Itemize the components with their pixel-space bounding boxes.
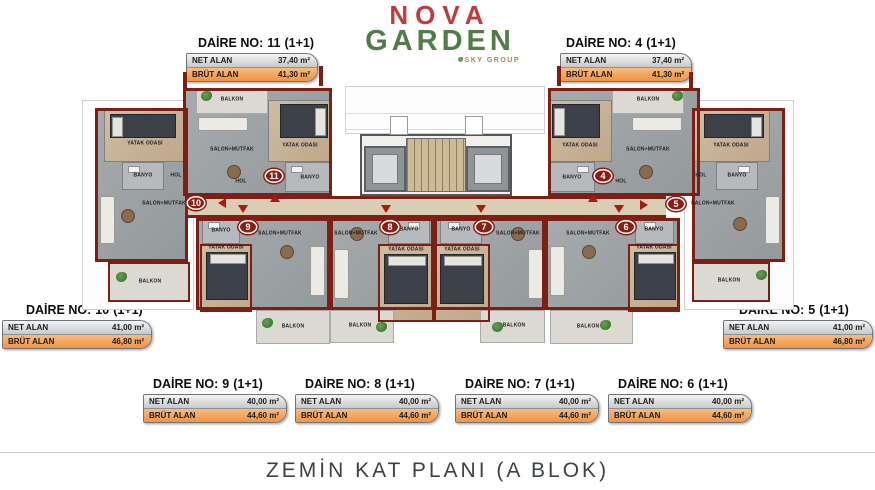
room-label: SALON+MUTFAK (142, 201, 186, 207)
room-label: YATAK ODASI (388, 247, 423, 253)
bath-fixture-icon (291, 166, 303, 173)
wall-stub (319, 66, 323, 86)
apartment-info-card-8: DAİRE NO:8(1+1) NET ALAN40,00 m² BRÜT AL… (295, 377, 439, 423)
net-area-row: NET ALAN37,40 m² (187, 54, 317, 68)
dining-table-icon (733, 217, 747, 231)
room-label: BANYO (211, 228, 230, 234)
dining-table-icon (639, 165, 653, 179)
entry-arrow-icon (614, 205, 624, 213)
apartment-title: DAİRE NO:9(1+1) (143, 377, 287, 391)
unit-marker-6: 6 (617, 220, 636, 234)
brut-area-row: BRÜT ALAN44,60 m² (456, 409, 598, 422)
apartment-title: DAİRE NO:4(1+1) (560, 36, 692, 50)
room-label: SALON+MUTFAK (626, 147, 670, 153)
room-label: SALON+MUTFAK (566, 231, 610, 237)
room-label: YATAK ODASI (636, 245, 671, 251)
sofa-icon (632, 117, 682, 131)
room-label: YATAK ODASI (208, 245, 243, 251)
unit-marker-11: 11 (265, 169, 284, 183)
terrace-line (346, 113, 544, 114)
room-label: YATAK ODASI (713, 143, 748, 149)
apartment-info-card-9: DAİRE NO:9(1+1) NET ALAN40,00 m² BRÜT AL… (143, 377, 287, 423)
unit-marker-8: 8 (381, 220, 400, 234)
unit-marker-4: 4 (594, 169, 613, 183)
brut-area-row: BRÜT ALAN44,60 m² (609, 409, 751, 422)
brand-group: SKY GROUP (352, 57, 528, 64)
entry-arrow-icon (476, 205, 486, 213)
header-logo: NOVA GARDEN SKY GROUP (352, 2, 528, 64)
room-label: HOL (615, 179, 626, 185)
room-label: BALKON (349, 323, 372, 329)
net-area-row: NET ALAN40,00 m² (609, 395, 751, 409)
room-label: YATAK ODASI (127, 141, 162, 147)
room-label: BALKON (503, 323, 526, 329)
footer-title: ZEMİN KAT PLANI (A BLOK) (0, 459, 875, 483)
room-label: HOL (695, 173, 706, 179)
terrace-line (346, 129, 544, 130)
apartment-title: DAİRE NO:8(1+1) (295, 377, 439, 391)
shaft-left (390, 116, 408, 135)
footer-divider (0, 452, 875, 453)
sofa-icon (198, 117, 248, 131)
net-area-row: NET ALAN37,40 m² (561, 54, 691, 68)
room-label: SALON+MUTFAK (210, 147, 254, 153)
apartment-title: DAİRE NO:6(1+1) (608, 377, 752, 391)
unit-marker-7: 7 (475, 220, 494, 234)
bed-icon (280, 104, 328, 138)
wall-stub (557, 66, 561, 86)
room-label: BALKON (637, 97, 660, 103)
terrace-outline (345, 86, 545, 134)
elevator-right (466, 146, 510, 192)
room-label: BALKON (718, 278, 741, 284)
dining-table-icon (280, 245, 294, 259)
sofa-icon (334, 249, 349, 299)
room-label: SALON+MUTFAK (496, 231, 540, 237)
room-label: BANYO (727, 173, 746, 179)
room-label: HOL (235, 179, 246, 185)
room-label: HOL (170, 173, 181, 179)
floor-plan: YATAK ODASI BANYO HOL SALON+MUTFAK BALKO… (88, 84, 788, 354)
dining-table-icon (582, 245, 596, 259)
shaft-right (465, 116, 483, 135)
entry-arrow-icon (238, 205, 248, 213)
entry-arrow-icon (640, 200, 648, 210)
unit-marker-10: 10 (187, 196, 206, 210)
bed-icon (110, 114, 176, 138)
bed-icon (206, 252, 248, 300)
brut-area-row: BRÜT ALAN44,60 m² (144, 409, 286, 422)
sofa-icon (310, 246, 325, 296)
page: { "logo": { "brand_top": "NOVA", "brand_… (0, 0, 875, 490)
room-label: BALKON (577, 324, 600, 330)
room-label: SALON+MUTFAK (258, 231, 302, 237)
dining-table-icon (121, 209, 135, 223)
net-area-row: NET ALAN40,00 m² (144, 395, 286, 409)
brut-area-row: BRÜT ALAN41,30 m² (561, 68, 691, 81)
room-label: BANYO (562, 175, 581, 181)
apartment-title: DAİRE NO:7(1+1) (455, 377, 599, 391)
room-label: YATAK ODASI (562, 143, 597, 149)
room-label: BANYO (644, 227, 663, 233)
entry-arrow-icon (381, 205, 391, 213)
brut-area-row: BRÜT ALAN41,30 m² (187, 68, 317, 81)
sofa-icon (550, 246, 565, 296)
room-label: YATAK ODASI (282, 143, 317, 149)
room-label: BANYO (300, 175, 319, 181)
bath-fixture-icon (577, 166, 589, 173)
apartment-title: DAİRE NO:11(1+1) (186, 36, 318, 50)
sofa-icon (100, 196, 115, 244)
wall-stub (183, 72, 187, 88)
apartment-info-card-7: DAİRE NO:7(1+1) NET ALAN40,00 m² BRÜT AL… (455, 377, 599, 423)
unit-marker-9: 9 (239, 220, 258, 234)
room-label: YATAK ODASI (444, 247, 479, 253)
unit-marker-5: 5 (667, 197, 686, 211)
room-label: BANYO (399, 227, 418, 233)
apartment-info-card-6: DAİRE NO:6(1+1) NET ALAN40,00 m² BRÜT AL… (608, 377, 752, 423)
elevator-left (364, 146, 406, 192)
apartment-info-card-11: DAİRE NO:11(1+1) NET ALAN37,40 m² BRÜT A… (186, 36, 318, 82)
bed-icon (440, 254, 484, 304)
sofa-icon (765, 196, 780, 244)
wall-stub (689, 72, 693, 88)
room-label: BANYO (133, 173, 152, 179)
bed-icon (634, 252, 676, 300)
room-label: BANYO (451, 227, 470, 233)
brand-garden: GARDEN (352, 28, 528, 56)
room-label: SALON+MUTFAK (334, 231, 378, 237)
bed-icon (384, 254, 428, 304)
entry-arrow-icon (218, 198, 226, 208)
room-label: BALKON (221, 97, 244, 103)
room-label: SALON+MUTFAK (691, 201, 735, 207)
room-label: BALKON (282, 324, 305, 330)
staircase (406, 138, 466, 192)
bed-icon (704, 114, 764, 138)
leaf-icon (458, 57, 463, 62)
dining-table-icon (227, 165, 241, 179)
entry-arrow-icon (270, 194, 280, 202)
bed-icon (552, 104, 600, 138)
entry-arrow-icon (588, 194, 598, 202)
net-area-row: NET ALAN40,00 m² (456, 395, 598, 409)
apartment-info-card-4: DAİRE NO:4(1+1) NET ALAN37,40 m² BRÜT AL… (560, 36, 692, 82)
sofa-icon (528, 249, 543, 299)
brut-area-row: BRÜT ALAN44,60 m² (296, 409, 438, 422)
room-label: BALKON (139, 279, 162, 285)
net-area-row: NET ALAN40,00 m² (296, 395, 438, 409)
